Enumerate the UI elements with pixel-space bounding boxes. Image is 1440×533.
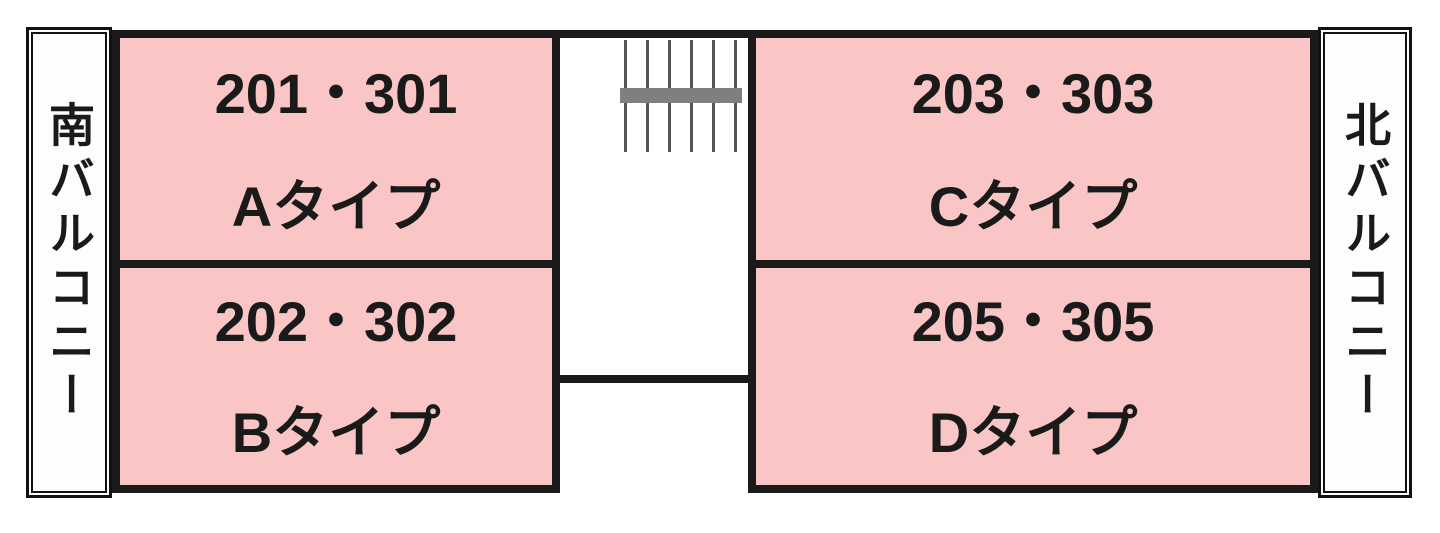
south-balcony-inner: 南バルコニー [31,32,107,493]
room-205-305: 205・305 Dタイプ [756,268,1310,485]
room-units-label: 203・303 [756,66,1310,122]
north-balcony-label: 北バルコニー [1342,101,1388,425]
north-balcony-inner: 北バルコニー [1323,32,1407,493]
floor-plan: 南バルコニー 201・301 Aタイプ 202・302 Bタイプ 203・303… [0,0,1440,533]
stair-landing [620,88,742,103]
room-units-label: 205・305 [756,294,1310,350]
room-202-302: 202・302 Bタイプ [120,268,552,485]
room-201-301: 201・301 Aタイプ [120,38,552,260]
room-203-303: 203・303 Cタイプ [756,38,1310,260]
room-type-label: Aタイプ [120,179,552,235]
room-units-label: 202・302 [120,294,552,350]
south-balcony-label: 南バルコニー [46,101,92,425]
room-type-label: Cタイプ [756,179,1310,235]
room-block-right: 203・303 Cタイプ 205・305 Dタイプ [748,30,1318,493]
staircase-icon [620,38,742,154]
room-type-label: Bタイプ [120,405,552,461]
wall-divider-left [120,260,552,268]
room-type-label: Dタイプ [756,405,1310,461]
room-units-label: 201・301 [120,66,552,122]
north-balcony: 北バルコニー [1318,27,1412,498]
wall-divider-right [756,260,1310,268]
corridor-top-wall [552,30,756,38]
corridor-mid-wall [552,375,756,383]
room-block-left: 201・301 Aタイプ 202・302 Bタイプ [112,30,560,493]
south-balcony: 南バルコニー [26,27,112,498]
